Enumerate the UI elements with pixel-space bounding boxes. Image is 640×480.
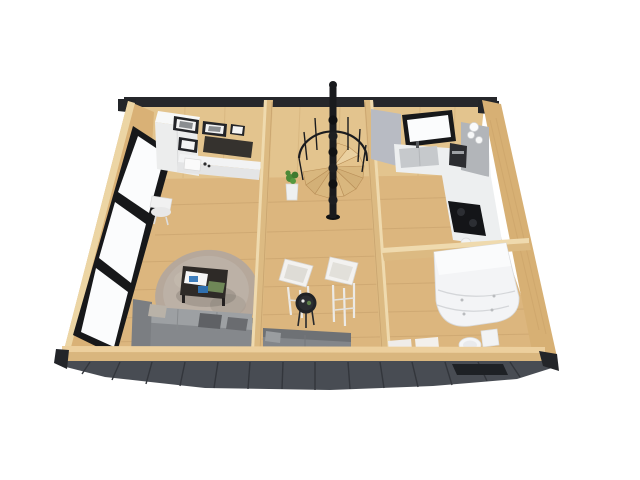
render-canvas xyxy=(0,0,640,480)
back-wall-cap xyxy=(124,97,497,107)
cabin-floorplan-render xyxy=(0,0,640,480)
round-side-table xyxy=(296,293,317,329)
coffee-machine xyxy=(449,143,467,168)
bench-pillow xyxy=(265,331,281,343)
corner-shower-vanity-unit xyxy=(434,243,519,326)
kettle xyxy=(470,123,479,132)
deck-doormat xyxy=(452,364,508,375)
sofa-pillow-beige xyxy=(148,304,167,318)
sofa-pillow-dark-2 xyxy=(226,317,248,331)
sofa-pillow-dark xyxy=(198,313,222,329)
kitchen-window xyxy=(402,110,456,147)
faucet xyxy=(416,141,419,148)
potted-plant xyxy=(285,170,298,200)
